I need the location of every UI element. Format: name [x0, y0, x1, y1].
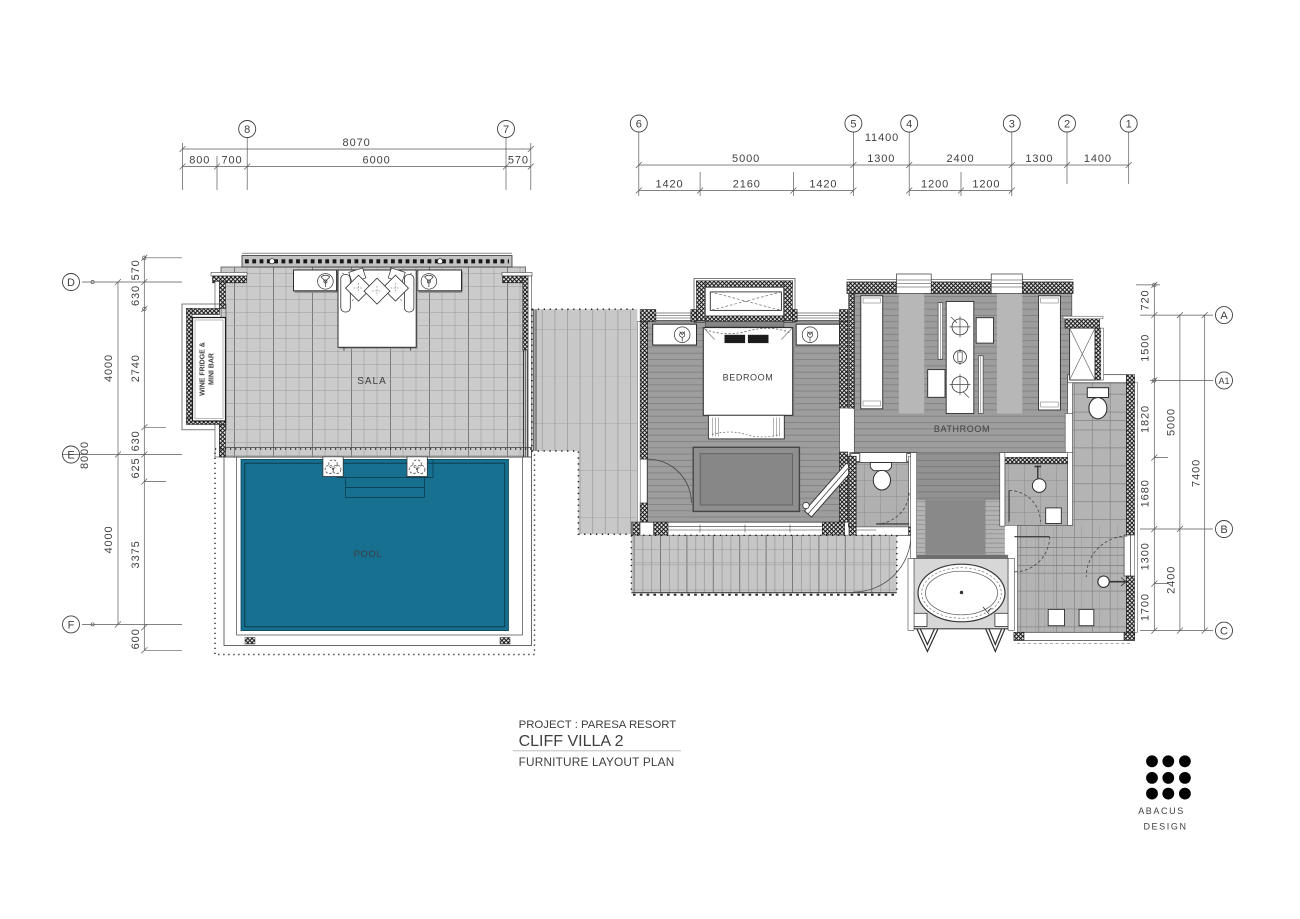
svg-text:A1: A1: [1218, 376, 1229, 386]
svg-text:1200: 1200: [921, 179, 949, 191]
svg-text:1820: 1820: [1140, 405, 1152, 433]
svg-text:1200: 1200: [972, 179, 1000, 191]
svg-text:5000: 5000: [732, 153, 760, 165]
svg-text:FURNITURE LAYOUT PLAN: FURNITURE LAYOUT PLAN: [519, 755, 675, 769]
svg-text:8: 8: [244, 124, 250, 136]
svg-text:8000: 8000: [79, 441, 91, 469]
svg-text:1400: 1400: [1084, 153, 1112, 165]
svg-text:CLIFF VILLA 2: CLIFF VILLA 2: [519, 733, 624, 750]
svg-text:POOL: POOL: [354, 549, 383, 560]
svg-text:E: E: [67, 450, 74, 462]
svg-text:WINE FRIDGE &: WINE FRIDGE &: [200, 342, 207, 396]
svg-text:4000: 4000: [103, 525, 115, 553]
svg-text:DESIGN: DESIGN: [1143, 822, 1187, 832]
svg-text:D: D: [67, 277, 75, 289]
svg-text:5000: 5000: [1166, 408, 1178, 436]
svg-text:2400: 2400: [1166, 566, 1178, 594]
svg-text:7400: 7400: [1190, 459, 1202, 487]
svg-text:1700: 1700: [1140, 593, 1152, 621]
svg-text:7: 7: [503, 124, 509, 136]
svg-text:ABACUS: ABACUS: [1138, 806, 1185, 816]
svg-text:MINI BAR: MINI BAR: [209, 353, 216, 385]
svg-text:625: 625: [130, 457, 142, 478]
svg-text:1: 1: [1126, 119, 1132, 131]
svg-text:720: 720: [1140, 289, 1152, 310]
svg-text:1420: 1420: [809, 179, 837, 191]
svg-text:630: 630: [130, 285, 142, 306]
svg-text:4000: 4000: [103, 354, 115, 382]
svg-text:6000: 6000: [363, 155, 391, 167]
svg-text:6: 6: [636, 119, 642, 131]
svg-text:SALA: SALA: [357, 376, 387, 387]
svg-text:630: 630: [130, 430, 142, 451]
svg-text:600: 600: [130, 628, 142, 649]
svg-text:1680: 1680: [1140, 479, 1152, 507]
svg-text:B: B: [1220, 524, 1227, 536]
svg-text:BATHROOM: BATHROOM: [934, 424, 990, 434]
svg-text:A: A: [1220, 310, 1228, 322]
svg-text:1300: 1300: [867, 153, 895, 165]
svg-text:2160: 2160: [733, 179, 761, 191]
svg-text:800: 800: [189, 155, 210, 167]
svg-text:1420: 1420: [655, 179, 683, 191]
svg-text:F: F: [68, 619, 75, 631]
svg-text:700: 700: [221, 155, 242, 167]
svg-text:5: 5: [850, 119, 856, 131]
svg-text:C: C: [1220, 626, 1228, 638]
svg-text:3375: 3375: [130, 540, 142, 568]
svg-text:1300: 1300: [1140, 542, 1152, 570]
svg-text:8070: 8070: [343, 137, 371, 149]
svg-text:3: 3: [1009, 119, 1015, 131]
svg-text:2400: 2400: [946, 153, 974, 165]
svg-text:1300: 1300: [1025, 153, 1053, 165]
svg-text:4: 4: [906, 119, 912, 131]
svg-text:11400: 11400: [865, 132, 899, 144]
svg-text:1500: 1500: [1140, 334, 1152, 362]
svg-text:2: 2: [1064, 119, 1070, 131]
svg-text:2740: 2740: [130, 354, 142, 382]
svg-text:BEDROOM: BEDROOM: [723, 373, 774, 383]
svg-text:570: 570: [508, 155, 529, 167]
svg-text:PROJECT : PARESA RESORT: PROJECT : PARESA RESORT: [519, 719, 677, 731]
svg-text:570: 570: [130, 259, 142, 280]
